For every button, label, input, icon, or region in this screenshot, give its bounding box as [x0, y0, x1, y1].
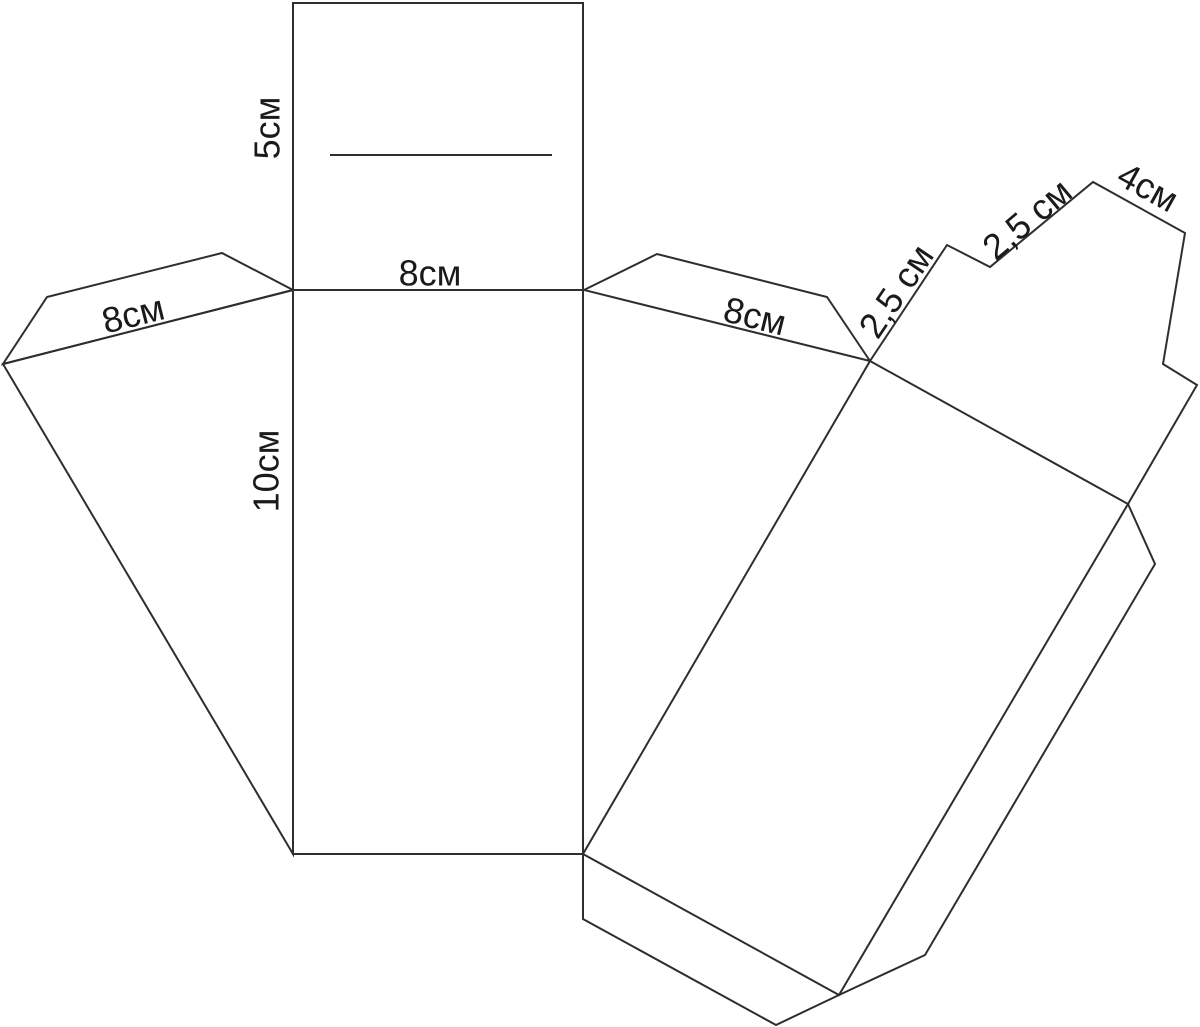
- box-net-pattern-page: 5см8см8см10см8см2,5 см2,5 см4см: [0, 0, 1200, 1027]
- left-side-panel: [3, 290, 293, 854]
- dim-strip-lower: 2,5 см: [850, 237, 941, 345]
- bottom-edge-strip: [839, 504, 1155, 995]
- dim-lid-depth: 5см: [247, 97, 288, 160]
- dim-right-flap: 8см: [720, 289, 791, 344]
- dim-top-width: 8см: [399, 253, 462, 294]
- dim-panel-height: 10см: [246, 430, 287, 513]
- dim-strip-upper: 2,5 см: [974, 170, 1079, 267]
- dim-left-flap: 8см: [98, 287, 169, 342]
- dim-tab-width: 4см: [1111, 154, 1186, 220]
- lid-panel: [293, 3, 583, 290]
- back-panel: [583, 361, 1128, 995]
- box-net-diagram: 5см8см8см10см8см2,5 см2,5 см4см: [0, 0, 1200, 1027]
- front-panel: [293, 290, 583, 854]
- bottom-glue-flap: [583, 854, 839, 1025]
